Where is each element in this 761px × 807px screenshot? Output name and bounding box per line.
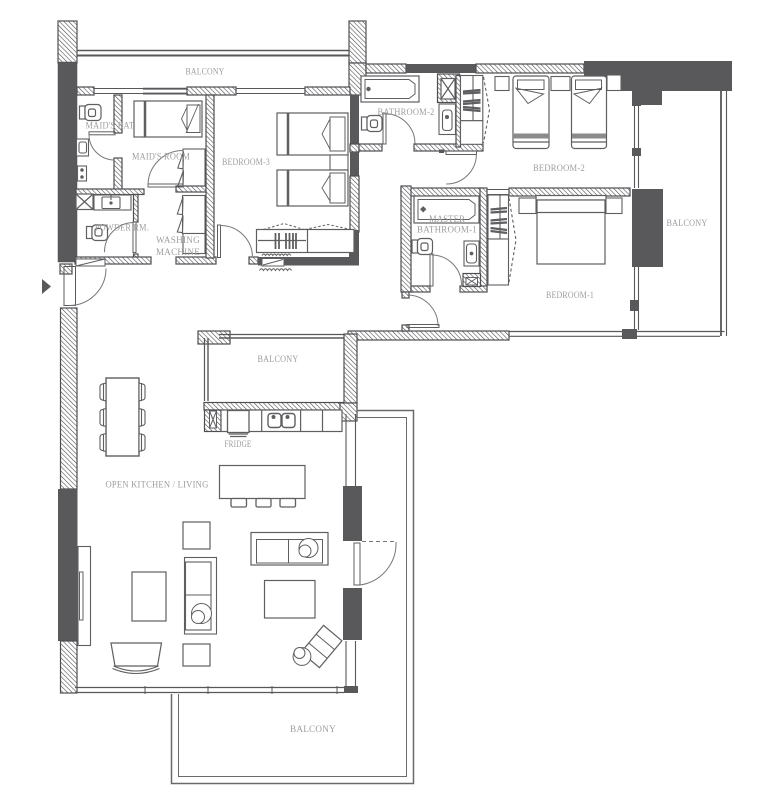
svg-text:POWDER RM.: POWDER RM. xyxy=(95,223,149,233)
svg-text:MAID'S BATH: MAID'S BATH xyxy=(86,121,141,131)
svg-text:BEDROOM-1: BEDROOM-1 xyxy=(546,290,594,300)
svg-text:BEDROOM-2: BEDROOM-2 xyxy=(533,163,585,173)
svg-text:BEDROOM-3: BEDROOM-3 xyxy=(222,157,270,167)
svg-text:BALCONY: BALCONY xyxy=(258,354,299,364)
svg-text:WASHING: WASHING xyxy=(156,235,200,245)
svg-text:OPEN KITCHEN / LIVING: OPEN KITCHEN / LIVING xyxy=(106,481,209,491)
svg-text:BATHROOM-1: BATHROOM-1 xyxy=(417,225,477,235)
svg-text:FRIDGE: FRIDGE xyxy=(225,439,252,449)
svg-text:BALCONY: BALCONY xyxy=(290,724,336,734)
svg-text:MASTER: MASTER xyxy=(429,214,465,224)
svg-text:BATHROOM-2: BATHROOM-2 xyxy=(378,107,435,117)
svg-text:MAID'S ROOM: MAID'S ROOM xyxy=(132,152,190,162)
svg-text:BALCONY: BALCONY xyxy=(667,218,708,228)
svg-text:BALCONY: BALCONY xyxy=(186,68,225,78)
svg-text:MACHINE: MACHINE xyxy=(156,247,200,257)
